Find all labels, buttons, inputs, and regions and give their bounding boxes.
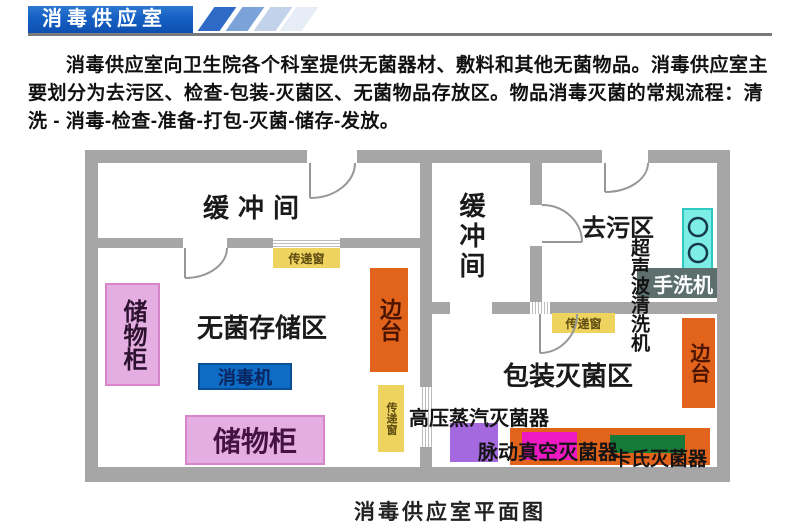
wall: [357, 150, 602, 163]
wall: [717, 150, 730, 482]
window: [273, 238, 340, 248]
wall: [530, 163, 542, 205]
door-arc: [310, 163, 355, 198]
wall: [98, 238, 183, 248]
window: [530, 302, 550, 314]
wall: [420, 447, 432, 467]
cabinet-bottom: 储物柜: [185, 415, 325, 465]
door-arc: [542, 205, 582, 242]
side-table-left: 边台: [370, 268, 408, 372]
pass-window-1: 传递窗: [273, 248, 340, 268]
wall: [85, 150, 307, 163]
intro-paragraph: 消毒供应室向卫生院各个科室提供无菌器材、敷料和其他无菌物品。消毒供应室主要划分为…: [28, 52, 774, 136]
room-label-buffer-left: 缓冲间: [203, 188, 308, 225]
pass-window-2: 传递窗: [552, 313, 615, 333]
wall: [492, 302, 530, 314]
wall: [530, 246, 542, 302]
header-divider: [28, 33, 772, 36]
wall: [85, 150, 98, 482]
vacuum-sterilizer-label: 脉动真空灭菌器: [478, 436, 618, 465]
wall: [432, 302, 450, 314]
document-page: 消毒供应室 消毒供应室向卫生院各个科室提供无菌器材、敷料和其他无菌物品。消毒供应…: [0, 0, 800, 531]
wall: [227, 238, 273, 248]
room-label-sterile-storage: 无菌存储区: [197, 308, 327, 345]
cassette-sterilizer-label: 卡氏灭菌器: [612, 444, 707, 471]
cabinet-left: 储物柜: [105, 283, 160, 386]
title-banner: 消毒供应室: [28, 6, 193, 33]
sink-unit: [682, 208, 713, 272]
wall: [420, 163, 432, 387]
figure-caption: 消毒供应室平面图: [100, 496, 800, 526]
steam-sterilizer-label: 高压蒸汽灭菌器: [409, 402, 549, 431]
floor-plan: 缓冲间 缓冲间 去污区 无菌存储区 包装灭菌区 储物柜 储物柜 消毒机 边台 传…: [85, 150, 730, 482]
door-arc: [605, 163, 648, 192]
pass-window-3: 传递窗: [378, 385, 404, 452]
sink-basins-icon: [684, 210, 711, 270]
room-label-buffer-right: 缓冲间: [453, 192, 490, 282]
door-arc: [185, 248, 227, 278]
room-label-packaging-sterilization: 包装灭菌区: [503, 356, 633, 393]
ultrasonic-cleaner-label: 超声波清洗机: [625, 238, 652, 370]
disinfector: 消毒机: [198, 363, 292, 390]
wall: [340, 238, 420, 248]
side-table-right: 边台: [682, 318, 715, 408]
